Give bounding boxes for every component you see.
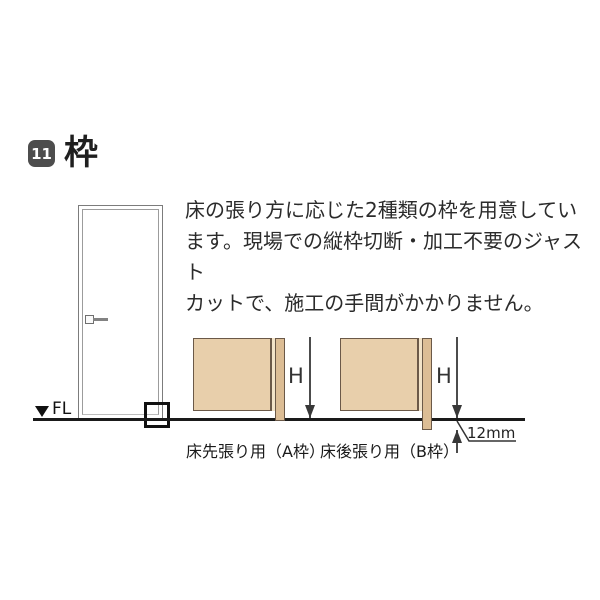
page: 11 枠 床の張り方に応じた2種類の枠を用意してい ます。現場での縦枠切断・加工… — [0, 0, 600, 600]
door-panel — [82, 209, 159, 415]
offset-dim-label: 12mm — [467, 425, 515, 441]
height-dim-label-b: H — [436, 365, 452, 387]
intro-line-3: カットで、施工の手間がかかりません。 — [185, 288, 595, 319]
wall-section-b — [340, 338, 418, 411]
intro-paragraph: 床の張り方に応じた2種類の枠を用意してい ます。現場での縦枠切断・加工不要のジャ… — [185, 195, 595, 319]
fl-label: FL — [52, 400, 71, 418]
frame-jamb-a — [275, 338, 285, 421]
arrow-down-icon-b — [452, 405, 462, 418]
caption-frame-b: 床後張り用（B枠） — [320, 438, 450, 462]
section-number-badge: 11 — [28, 140, 55, 167]
intro-line-2: ます。現場での縦枠切断・加工不要のジャスト — [185, 226, 595, 288]
detail-callout-box — [144, 402, 170, 428]
door-handle-lever-icon — [93, 318, 108, 321]
wall-section-a — [193, 338, 271, 411]
section-title: 枠 — [64, 135, 98, 171]
arrow-up-icon-b — [452, 430, 462, 443]
arrow-down-icon-a — [305, 405, 315, 418]
fl-triangle-icon — [35, 406, 49, 417]
intro-line-1: 床の張り方に応じた2種類の枠を用意してい — [185, 195, 595, 226]
caption-frame-a: 床先張り用（A枠） — [186, 438, 316, 462]
height-dim-label-a: H — [288, 365, 304, 387]
frame-jamb-b — [422, 338, 432, 430]
